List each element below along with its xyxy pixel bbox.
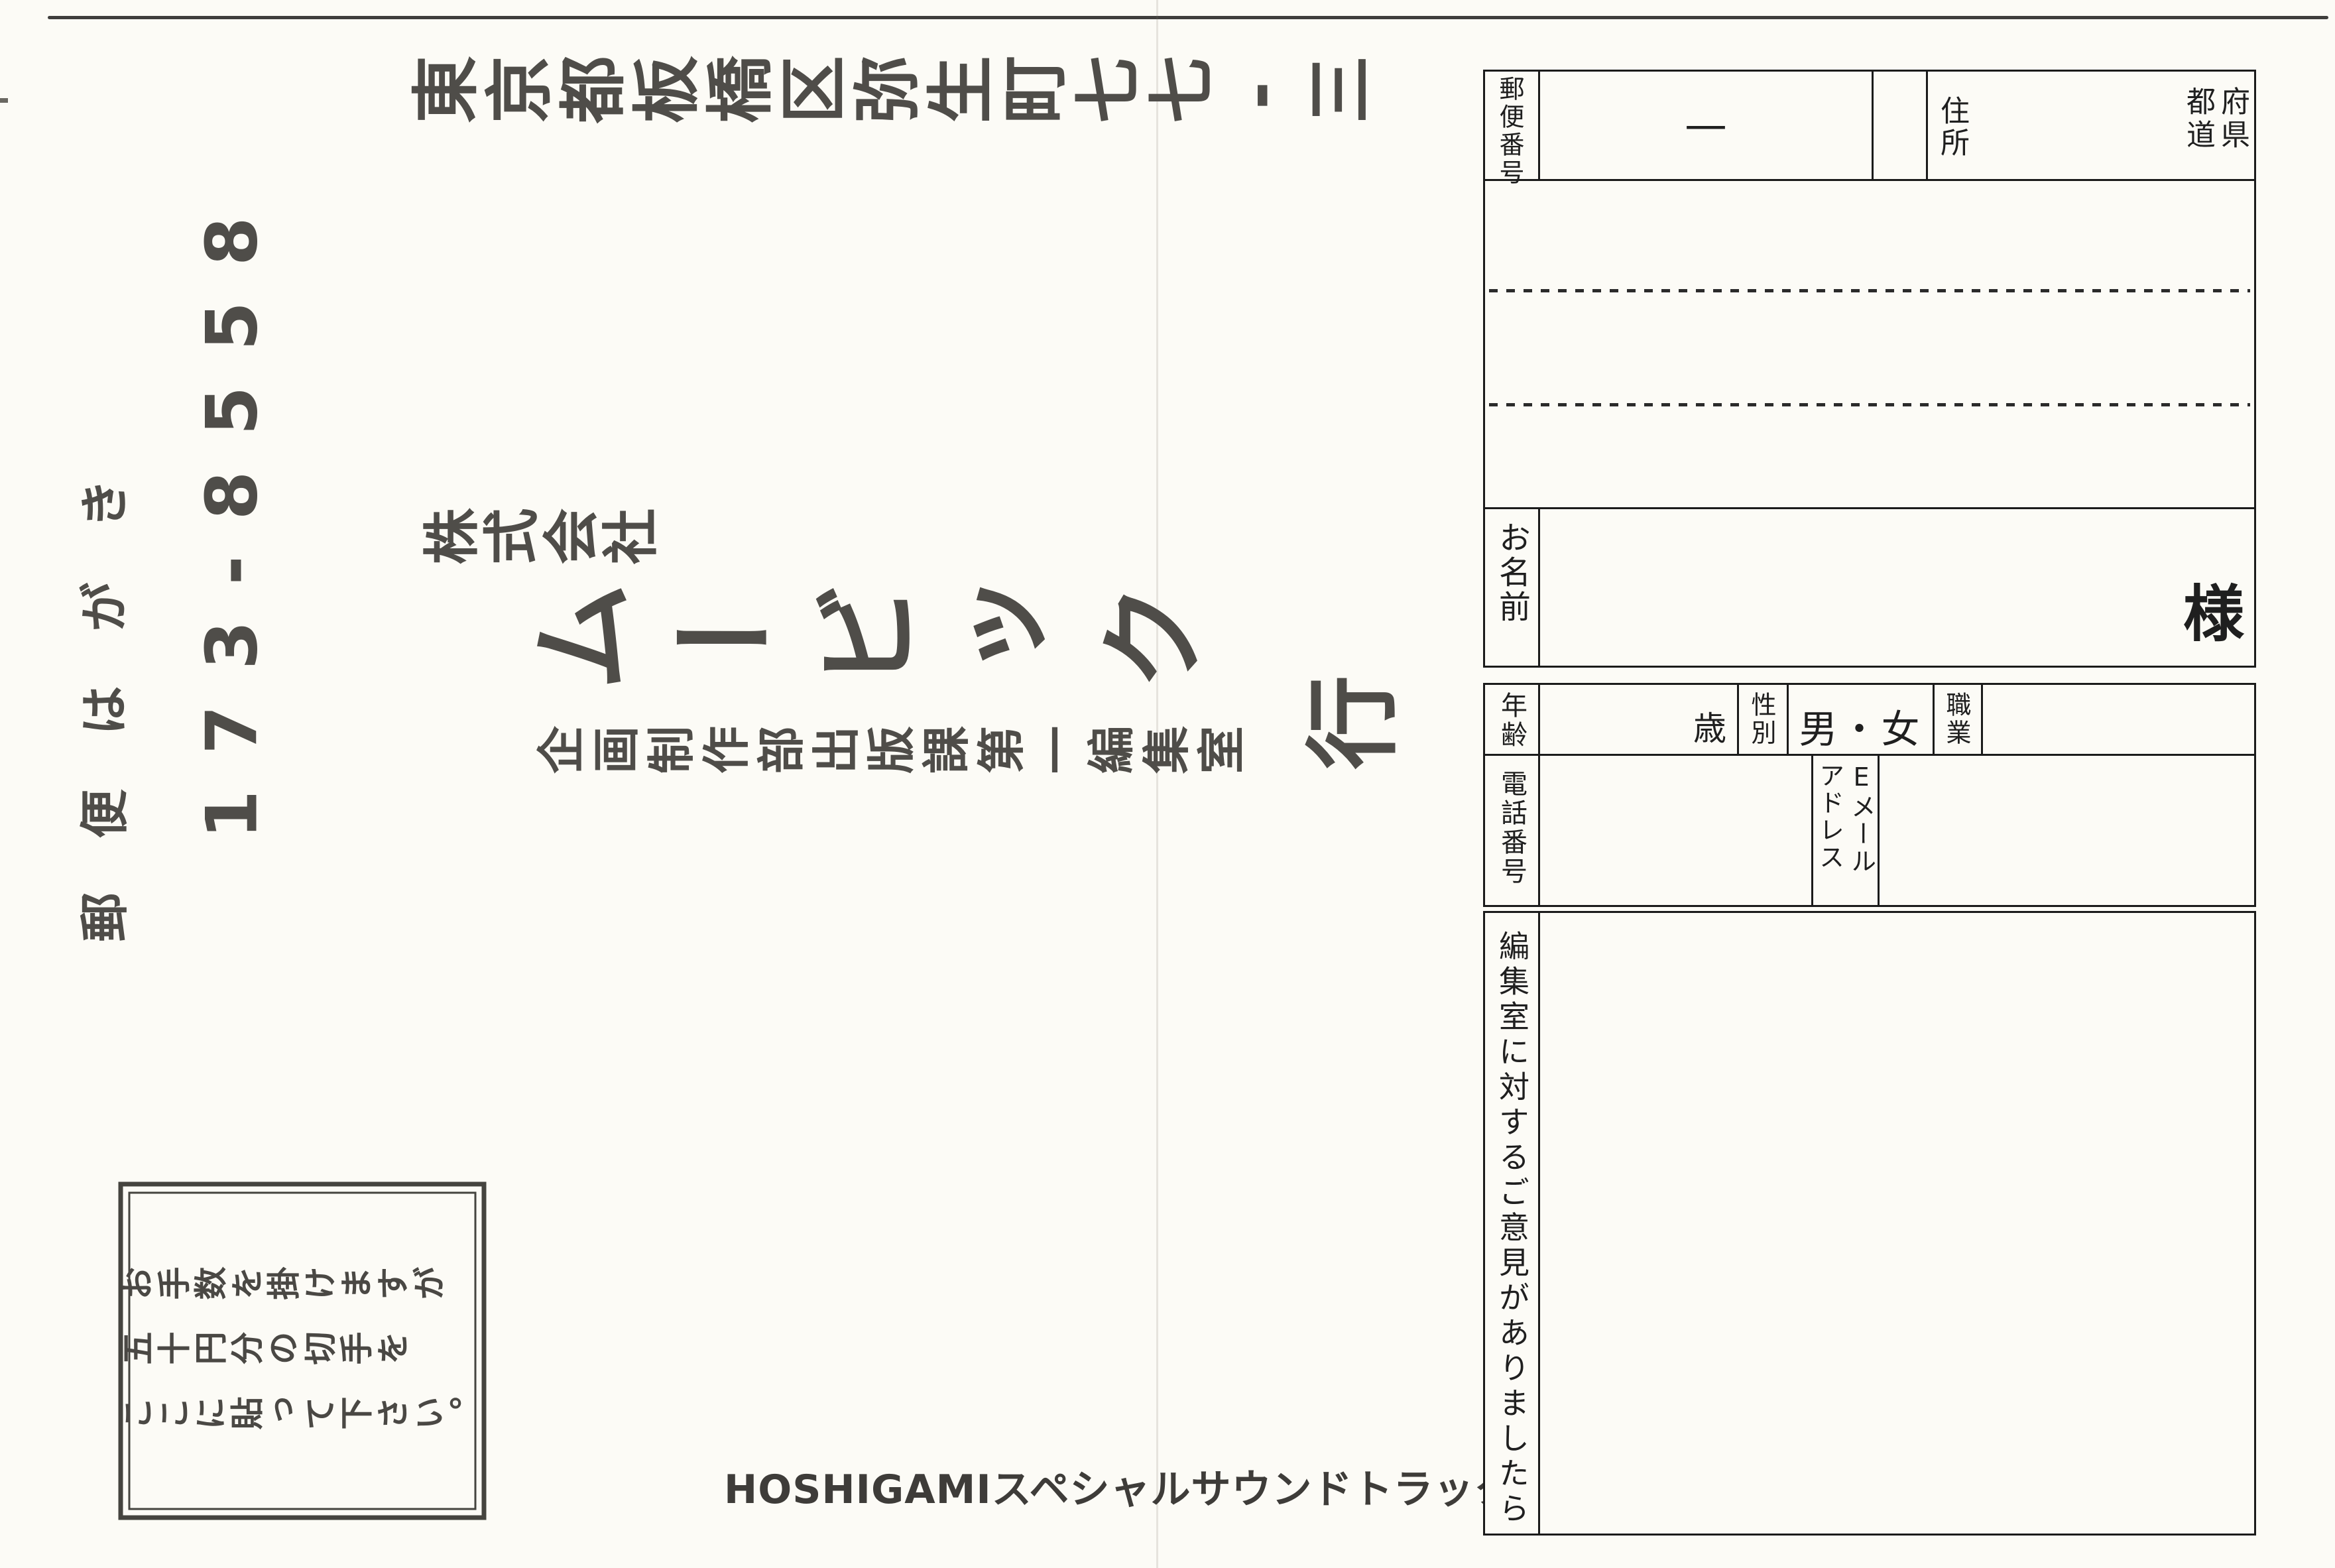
stamp-instruction-line3: ここに貼って下さい。 (120, 1383, 485, 1448)
prefecture-col-left: 都道 (2183, 86, 2212, 152)
prefecture-grid: 都道 府県 (2183, 86, 2247, 152)
postal-code-field: — (1540, 72, 1872, 179)
prefecture-field: 都道 府県 (1928, 72, 2256, 179)
cell-divider (1538, 756, 1540, 905)
age-unit: 歳 (1693, 702, 1726, 750)
sex-label: 性別 (1749, 692, 1774, 747)
postcard-header: 郵便はがき (65, 424, 136, 941)
cell-divider (1872, 72, 1874, 181)
email-label-col-right: Eメール (1846, 762, 1878, 875)
address-dotted-rule (1489, 289, 2250, 292)
row-divider (1485, 179, 2254, 181)
email-label-cell: アドレス Eメール (1813, 756, 1878, 905)
postal-code-label: 郵便番号 (1497, 76, 1522, 187)
sex-field: 男・女 (1789, 685, 1933, 754)
name-label: お名前 (1496, 521, 1527, 625)
destination-address: 東京都板橋区弥生町七七-三 (410, 46, 1364, 144)
cell-divider (1737, 685, 1739, 756)
soundtrack-title: HOSHIGAMIスペシャルサウンドトラック (724, 1457, 1515, 1515)
stamp-box-inner: お手数を掛けますが 五十円分の切手を ここに貼って下さい。 (128, 1191, 476, 1510)
stamp-instruction-line1: お手数を掛けますが (120, 1253, 485, 1318)
stamp-box: お手数を掛けますが 五十円分の切手を ここに貼って下さい。 (118, 1181, 486, 1520)
address-name-table: 郵便番号 — 住所 都道 府県 お名前 様 (1483, 70, 2256, 668)
stamp-instruction-line2: 五十円分の切手を (120, 1318, 485, 1383)
email-label: アドレス Eメール (1813, 762, 1878, 875)
rotated-card-layer: 郵便はがき 173-8558 東京都板橋区弥生町七七-三 株式会社 ムービック … (0, 0, 1478, 1568)
phone-label: 電話番号 (1498, 770, 1525, 886)
cell-divider (1878, 756, 1880, 905)
email-label-col-left: アドレス (1814, 762, 1846, 875)
address-dotted-rule (1489, 403, 2250, 406)
stamp-instructions: お手数を掛けますが 五十円分の切手を ここに貼って下さい。 (120, 1253, 485, 1448)
comments-label: 編集室に対するご意見がありましたら (1497, 930, 1527, 1528)
age-field: 歳 (1540, 685, 1737, 754)
name-field: 様 (1540, 509, 2256, 666)
honorific-yuki: 行 (1276, 675, 1413, 769)
destination-postal-code: 173-8558 (191, 126, 272, 839)
department-line: 企画制作部出版課第一編集室 (536, 719, 1265, 788)
postal-dash: — (1685, 101, 1727, 150)
age-label: 年齢 (1498, 692, 1525, 750)
sex-options: 男・女 (1789, 698, 1933, 754)
profile-table: 年齢 歳 性別 男・女 職業 電話番号 アドレス Eメール (1483, 683, 2256, 907)
cell-divider (1981, 685, 1983, 756)
name-honorific-sama: 様 (2183, 565, 2244, 653)
cell-divider (1933, 685, 1935, 756)
comments-field (1540, 913, 2256, 1534)
prefecture-col-right: 府県 (2218, 86, 2247, 152)
occupation-label: 職業 (1944, 692, 1969, 747)
comments-table: 編集室に対するご意見がありましたら (1483, 911, 2256, 1536)
company-name: ムービック (525, 566, 1261, 725)
